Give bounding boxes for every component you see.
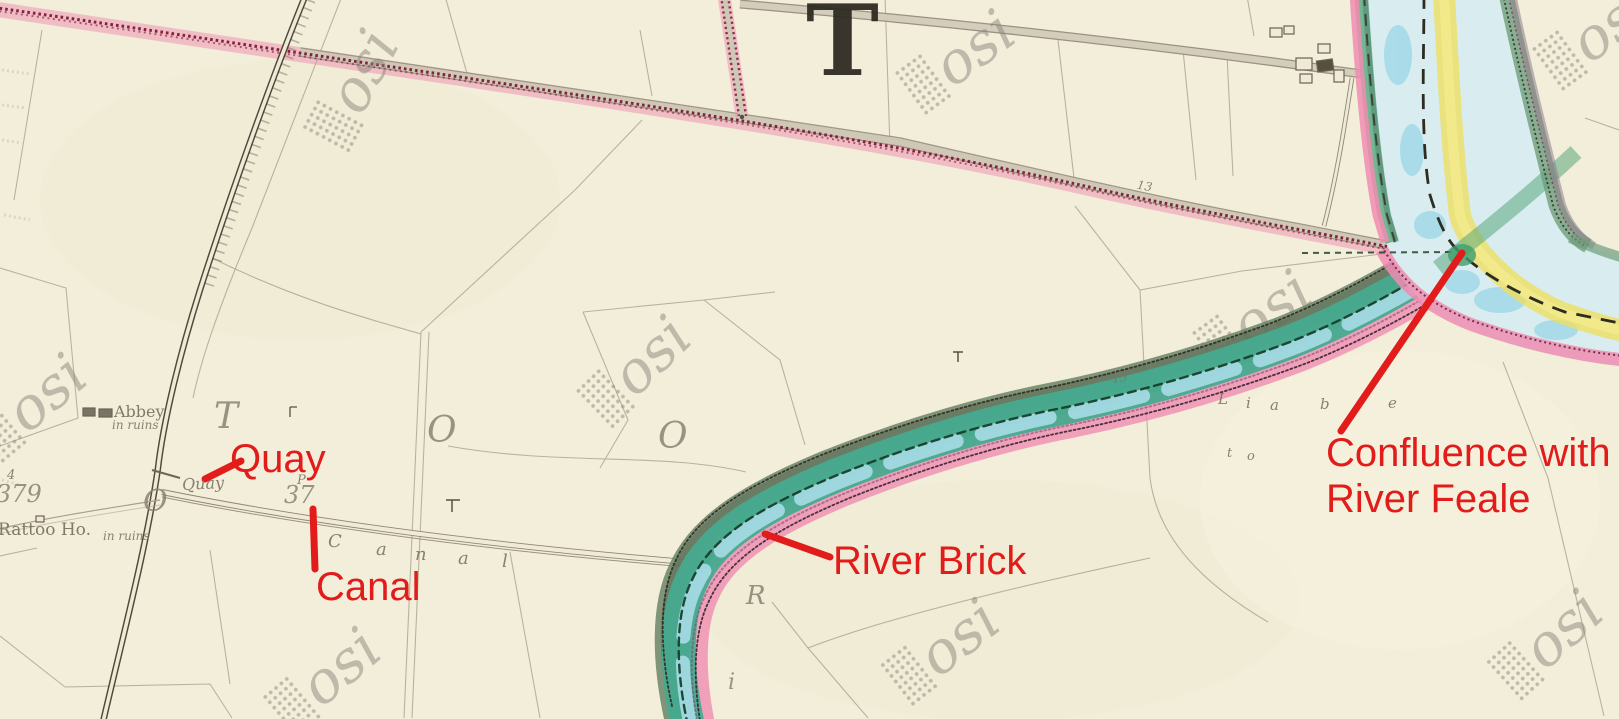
canal-leader-line [313,509,315,569]
map-canvas[interactable]: osi osi osi osi osi osi osi osi [0,0,1619,719]
historic-map-screenshot: osi osi osi osi osi osi osi osi [0,0,1619,719]
abbey-symbol [83,408,95,416]
filled-building [1316,59,1333,72]
